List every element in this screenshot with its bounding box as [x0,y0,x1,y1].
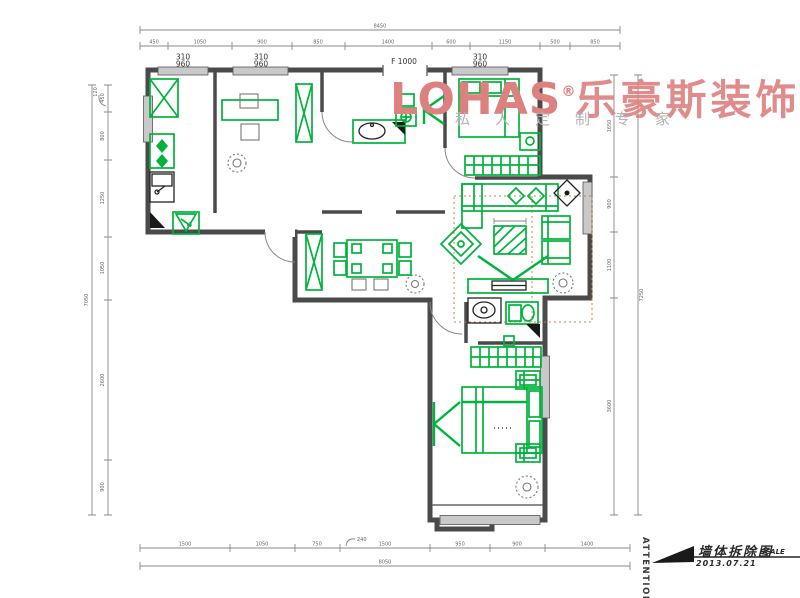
dim-leader-label: 240 [357,537,367,543]
lower-wing [434,298,542,498]
study [222,84,312,172]
scale-label: SCALE [760,548,785,556]
dim-label: 850 [590,40,600,46]
dim-label: 450 [100,93,106,103]
dim-label: 1250 [100,192,106,205]
ceiling-fan-icon [516,476,538,498]
dim-label: 900 [512,542,522,548]
side-chair [542,216,570,239]
side-chair [542,241,570,264]
bathroom-sink [468,298,501,323]
dining-chairs [334,243,411,290]
dim-label: 1500 [379,542,392,548]
window [583,182,592,234]
dim-total-top: 8450 [374,24,387,30]
dim-label: 750 [312,542,322,548]
window-size-label: 960 [254,60,269,69]
door-arc [322,112,352,142]
dim-label: 900 [607,199,613,209]
dim-label: 1150 [499,40,512,46]
stove [150,134,174,168]
kitchen [150,79,199,234]
living-room [406,180,592,322]
wardrobe-x [296,84,312,142]
dim-label: 1050 [100,262,106,275]
dim-label: 450 [149,40,159,46]
dim-label: 1100 [607,259,613,272]
dim-label: 800 [100,131,106,141]
window [440,516,540,525]
entry-opening [265,227,295,237]
dim-total-left: 7050 [84,294,90,307]
dresser [465,156,540,175]
drawing-date: 2013.07.21 [696,559,757,568]
demolition-mark [478,256,548,280]
door-arc [445,148,475,178]
armchair-diamond [441,224,481,264]
nightstand [520,133,540,150]
tv-stand [468,279,548,293]
desk [222,94,278,140]
watermark-tagline: 私人定制专家 [455,108,695,129]
dim-label: 1050 [256,542,269,548]
dim-label: 900 [100,482,106,492]
dining-cabinet-x [306,234,322,290]
dim-leader-label: 120 [93,87,99,97]
dimension-right: 1650 900 1100 3600 7250 [607,75,645,515]
registered-mark-icon: ® [561,84,575,100]
dim-label: 1400 [382,40,395,46]
door-size-label: F 1000 [391,57,417,66]
title-arrow [652,546,694,563]
dresser [471,347,541,367]
coffee-table [494,218,526,254]
dim-total-bottom: 8050 [379,560,392,566]
ceiling-fan-icon [406,275,424,293]
dim-label: 900 [257,40,267,46]
dimension-bottom: 240 1500 1050 750 1500 950 900 1400 8050 [140,537,630,570]
toilet [506,302,538,324]
dining-area [306,234,411,290]
door-arc [430,302,462,334]
dimension-top: 8450 450 1050 900 850 1400 600 1150 500 … [140,24,620,51]
corner-shelf [526,324,540,338]
floor-plan-sheet: 8450 450 1050 900 850 1400 600 1150 500 … [0,0,800,598]
dim-label: 1050 [194,40,207,46]
kitchen-sink [150,172,174,202]
dim-label: 2600 [100,374,106,387]
dim-label: 500 [550,40,560,46]
dim-total-right: 7250 [639,289,645,302]
corner-counter [150,212,165,228]
dim-label: 1500 [179,542,192,548]
demolition-mark [434,402,460,446]
dim-label: 950 [455,542,465,548]
kitchen-cabinet-x [150,79,178,117]
bed [462,387,542,453]
attention-label: ATTENTION [640,537,650,598]
rug-outline [454,196,592,322]
dim-label: 1400 [581,542,594,548]
clock-fan-icon [228,154,246,172]
dining-table [347,240,397,277]
dim-label: 850 [313,40,323,46]
plant-icon [553,273,573,293]
dim-label: 600 [446,40,456,46]
window-size-label: 960 [176,60,191,69]
dimension-left: 7050 120 450 800 1250 1050 2600 900 [84,85,112,515]
window [144,96,153,142]
dim-label: 3600 [607,400,613,413]
